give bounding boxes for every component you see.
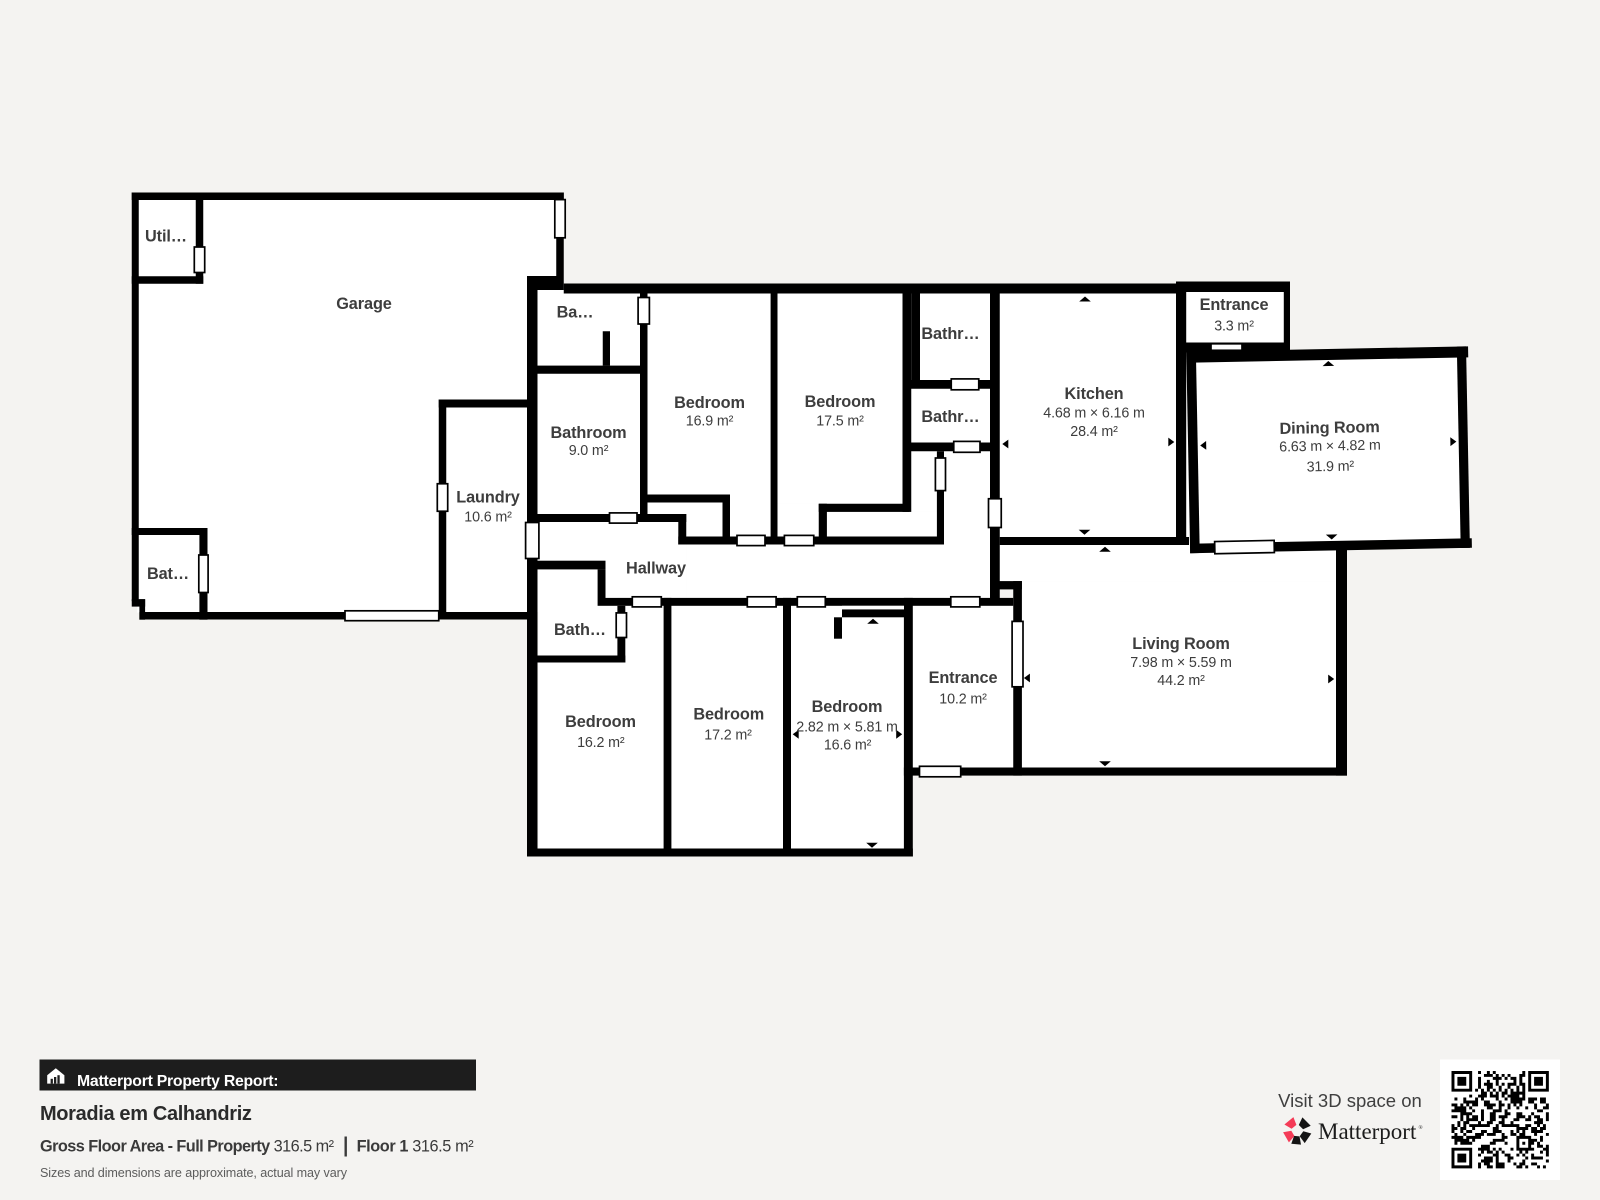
svg-text:9.0 m²: 9.0 m² [569, 443, 609, 459]
svg-text:Bath…: Bath… [554, 621, 606, 639]
svg-text:10.6 m²: 10.6 m² [464, 510, 512, 526]
svg-text:16.2 m²: 16.2 m² [577, 735, 625, 751]
svg-text:17.2 m²: 17.2 m² [704, 728, 752, 744]
svg-text:Kitchen: Kitchen [1064, 385, 1123, 403]
svg-text:17.5 m²: 17.5 m² [816, 414, 864, 430]
svg-text:Gross Floor Area - Full Proper: Gross Floor Area - Full Property 316.5 m… [40, 1138, 335, 1156]
svg-text:Dining Room: Dining Room [1279, 418, 1380, 438]
svg-text:Ba…: Ba… [557, 304, 594, 322]
svg-text:Visit 3D space on: Visit 3D space on [1278, 1090, 1422, 1111]
svg-text:4.68 m × 6.16 m: 4.68 m × 6.16 m [1043, 406, 1144, 422]
svg-text:Bathroom: Bathroom [550, 424, 626, 442]
svg-text:Matterport Property Report:: Matterport Property Report: [77, 1073, 278, 1090]
svg-text:®: ® [1419, 1124, 1423, 1131]
svg-text:Matterport: Matterport [1318, 1119, 1417, 1144]
svg-text:Bat…: Bat… [147, 565, 189, 583]
svg-text:7.98 m × 5.59 m: 7.98 m × 5.59 m [1130, 655, 1231, 671]
svg-text:28.4 m²: 28.4 m² [1070, 424, 1118, 440]
svg-text:Bathr…: Bathr… [921, 408, 979, 426]
svg-text:Bedroom: Bedroom [693, 706, 764, 724]
svg-text:Floor 1 316.5 m²: Floor 1 316.5 m² [357, 1138, 475, 1156]
svg-text:Entrance: Entrance [929, 669, 998, 687]
svg-text:Hallway: Hallway [626, 560, 686, 578]
svg-text:Entrance: Entrance [1200, 296, 1269, 314]
svg-text:Sizes and dimensions are appro: Sizes and dimensions are approximate, ac… [40, 1166, 348, 1180]
svg-text:Garage: Garage [336, 295, 392, 313]
svg-text:Bedroom: Bedroom [674, 394, 745, 412]
svg-text:2.82 m × 5.81 m: 2.82 m × 5.81 m [796, 719, 897, 735]
svg-text:Bedroom: Bedroom [565, 713, 636, 731]
svg-text:16.9 m²: 16.9 m² [686, 414, 734, 430]
svg-text:Bathr…: Bathr… [921, 325, 979, 343]
svg-text:31.9 m²: 31.9 m² [1306, 459, 1354, 476]
svg-text:6.63 m × 4.82 m: 6.63 m × 4.82 m [1279, 438, 1381, 456]
svg-text:Moradia em Calhandriz: Moradia em Calhandriz [40, 1103, 252, 1125]
svg-text:16.6 m²: 16.6 m² [824, 738, 872, 754]
svg-text:Living Room: Living Room [1132, 635, 1230, 653]
svg-text:Bedroom: Bedroom [805, 393, 876, 411]
svg-text:10.2 m²: 10.2 m² [939, 692, 987, 708]
svg-text:Bedroom: Bedroom [812, 698, 883, 716]
svg-text:Laundry: Laundry [456, 489, 520, 507]
svg-text:Util…: Util… [145, 228, 187, 246]
svg-text:44.2 m²: 44.2 m² [1157, 673, 1205, 689]
svg-text:3.3 m²: 3.3 m² [1214, 319, 1254, 335]
